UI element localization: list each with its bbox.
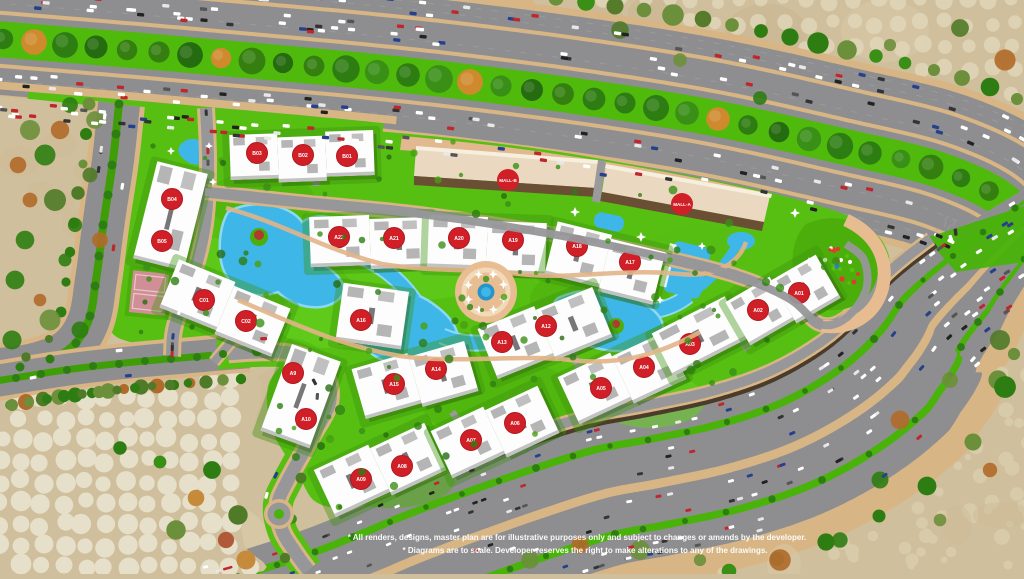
svg-text:C01: C01 (199, 298, 209, 304)
svg-text:A10: A10 (301, 417, 311, 423)
svg-text:A02: A02 (753, 308, 763, 314)
svg-text:B05: B05 (157, 239, 167, 245)
svg-text:B03: B03 (252, 151, 262, 157)
svg-text:B04: B04 (167, 197, 177, 203)
svg-text:A06: A06 (510, 421, 520, 427)
svg-text:A16: A16 (356, 318, 366, 324)
svg-text:A04: A04 (639, 365, 649, 371)
svg-text:A13: A13 (497, 340, 507, 346)
svg-text:A9: A9 (290, 371, 297, 377)
svg-text:A19: A19 (508, 238, 518, 244)
svg-text:A09: A09 (356, 477, 366, 483)
svg-text:A05: A05 (596, 386, 606, 392)
svg-text:A18: A18 (572, 244, 582, 250)
svg-text:A12: A12 (541, 324, 551, 330)
svg-text:* All renders, designs, master: * All renders, designs, master plan are … (348, 533, 807, 542)
svg-text:A21: A21 (389, 236, 399, 242)
svg-text:A17: A17 (625, 260, 635, 266)
svg-text:B02: B02 (298, 153, 308, 159)
svg-text:A20: A20 (454, 236, 464, 242)
svg-text:MALL-A: MALL-A (673, 202, 691, 207)
svg-text:A01: A01 (794, 291, 804, 297)
svg-text:A15: A15 (389, 382, 399, 388)
svg-text:C02: C02 (241, 319, 251, 325)
svg-text:A14: A14 (431, 367, 441, 373)
svg-text:MALL-B: MALL-B (499, 178, 517, 183)
svg-text:A08: A08 (397, 464, 407, 470)
svg-text:* Diagrams are to scale. Devel: * Diagrams are to scale. Developer reser… (402, 546, 767, 555)
svg-text:B01: B01 (342, 154, 352, 160)
